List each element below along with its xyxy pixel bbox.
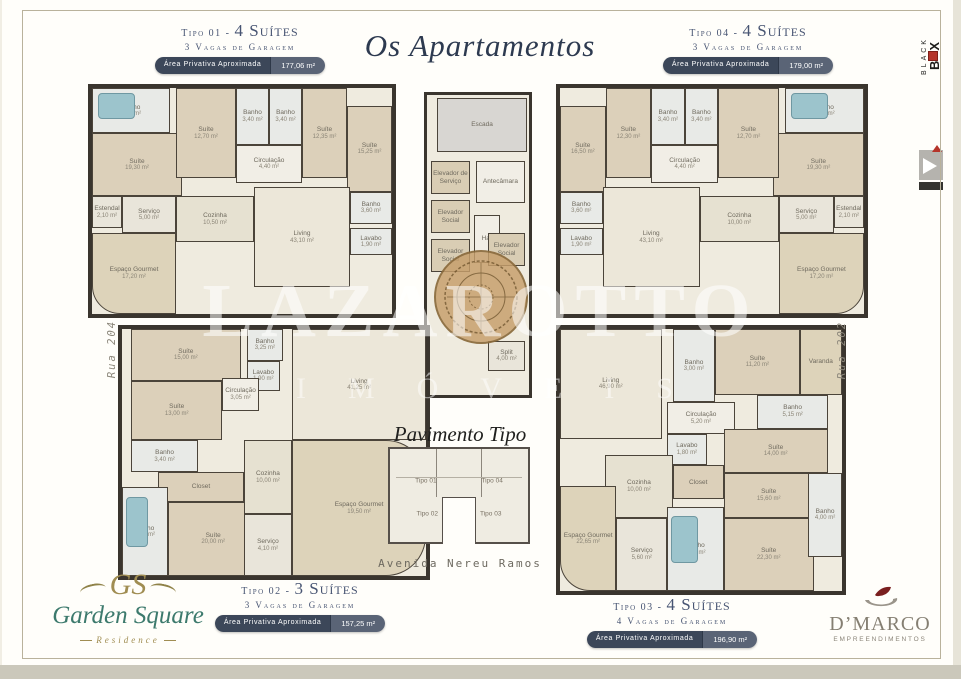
room-elevador-social: Elevador Social bbox=[488, 233, 525, 266]
mini-plan-line bbox=[436, 449, 437, 497]
red-cube-icon bbox=[928, 51, 938, 61]
room-label: Serviço bbox=[138, 208, 160, 215]
room-area: 11,20 m² bbox=[746, 362, 769, 369]
room-area: 1,90 m² bbox=[361, 242, 381, 249]
room-banho: Banho6,00 m² bbox=[92, 88, 170, 133]
room-area: 3,40 m² bbox=[154, 457, 174, 464]
room-suite: Suíte12,30 m² bbox=[606, 88, 652, 178]
room-area: 10,00 m² bbox=[256, 478, 280, 485]
room-label: Espaço Gourmet bbox=[110, 266, 159, 273]
room-area: 20,00 m² bbox=[201, 539, 225, 546]
room-area: 4,00 m² bbox=[496, 356, 516, 363]
room-espaco-gourmet: Espaço Gourmet22,65 m² bbox=[560, 486, 616, 591]
red-triangle-icon bbox=[932, 145, 942, 152]
room-label: Circulação bbox=[225, 387, 256, 394]
room-label: Suíte bbox=[575, 142, 590, 149]
room-banho: Banho6,50 m² bbox=[667, 507, 723, 591]
room-area: 3,60 m² bbox=[571, 208, 591, 215]
room-label: Cozinha bbox=[203, 212, 227, 219]
room-area: 17,20 m² bbox=[122, 274, 146, 281]
room-area: 19,30 m² bbox=[807, 165, 831, 172]
room-banho: Banho4,00 m² bbox=[808, 473, 842, 557]
room-label: Suíte bbox=[761, 547, 776, 554]
room-label: Varanda bbox=[809, 358, 833, 365]
room-label: Suíte bbox=[198, 126, 213, 133]
room-label: Suíte bbox=[750, 355, 765, 362]
room-banho: Banho3,40 m² bbox=[685, 88, 718, 145]
room-label: Banho bbox=[783, 404, 802, 411]
room-area: 15,60 m² bbox=[757, 496, 781, 503]
area-badge: Área Privativa Aproximada 179,00 m² bbox=[663, 57, 833, 74]
room-label: Banho bbox=[685, 359, 704, 366]
room-label: Antecâmara bbox=[483, 178, 518, 185]
unit-label-tipo04: Tipo 04 - 4 Suítes 3 Vagas de Garagem Ár… bbox=[633, 22, 863, 74]
room-area: 10,50 m² bbox=[203, 220, 227, 227]
room-label: Banho bbox=[243, 109, 262, 116]
room-lavabo: Lavabo1,90 m² bbox=[560, 228, 603, 255]
room-label: Banho bbox=[659, 109, 678, 116]
room-elevador-de-servico: Elevador de Serviço bbox=[431, 161, 470, 194]
room-suite: Suíte12,70 m² bbox=[718, 88, 779, 178]
room-label: Cozinha bbox=[627, 479, 651, 486]
blackbox-b: B bbox=[927, 61, 942, 70]
dmarco-swoosh-icon bbox=[857, 583, 903, 609]
room-label: Elevador Social bbox=[433, 209, 468, 224]
room-area: 3,40 m² bbox=[658, 117, 678, 124]
room-area: 1,90 m² bbox=[571, 242, 591, 249]
mini-plan-line bbox=[481, 449, 482, 497]
room-label: Suíte bbox=[811, 158, 826, 165]
room-suite: Suíte12,70 m² bbox=[176, 88, 236, 178]
room-area: 19,30 m² bbox=[125, 165, 149, 172]
room-suite: Suíte16,50 m² bbox=[560, 106, 606, 192]
room-label: Split bbox=[500, 349, 513, 356]
garden-square-subtitle: Residence bbox=[80, 635, 175, 645]
room-label: Lavabo bbox=[676, 442, 697, 449]
room-label: Cozinha bbox=[727, 212, 751, 219]
room-label: Circulação bbox=[686, 411, 717, 418]
room-area: 5,60 m² bbox=[632, 555, 652, 562]
room-label: Suíte bbox=[206, 532, 221, 539]
area-badge: Área Privativa Aproximada 157,25 m² bbox=[215, 615, 385, 632]
unit-tipo-prefix: Tipo 02 - bbox=[241, 586, 290, 597]
unit-vagas: 3 Vagas de Garagem bbox=[633, 42, 863, 52]
room-escada: Escada bbox=[437, 98, 527, 152]
room-label: Serviço bbox=[795, 208, 817, 215]
area-badge-label: Área Privativa Aproximada bbox=[587, 631, 702, 648]
mini-label-tipo04: Tipo 04 bbox=[481, 477, 502, 484]
room-area: 14,00 m² bbox=[764, 451, 788, 458]
room-label: Banho bbox=[362, 201, 381, 208]
room-estendal: Estendal2,10 m² bbox=[834, 196, 864, 228]
room-closet: Closet bbox=[158, 472, 243, 502]
bottom-margin-band bbox=[0, 665, 961, 679]
area-badge-value: 179,00 m² bbox=[778, 57, 833, 74]
room-estendal: Estendal2,10 m² bbox=[92, 196, 122, 228]
room-suite: Suíte14,00 m² bbox=[724, 429, 828, 474]
room-suite: Suíte11,20 m² bbox=[715, 329, 800, 395]
area-badge-label: Área Privativa Aproximada bbox=[215, 615, 330, 632]
room-lavabo: Lavabo1,80 m² bbox=[667, 434, 706, 465]
area-badge: Área Privativa Aproximada 177,06 m² bbox=[155, 57, 325, 74]
room-lavabo: Lavabo1,90 m² bbox=[350, 228, 392, 255]
unit-title: Tipo 01 - 4 Suítes bbox=[125, 22, 355, 40]
room-label: Suíte bbox=[362, 142, 377, 149]
room-banho: Banho3,60 m² bbox=[350, 192, 392, 224]
room-area: 4,40 m² bbox=[674, 164, 694, 171]
room-cozinha: Cozinha10,50 m² bbox=[176, 196, 254, 241]
room-area: 12,70 m² bbox=[194, 134, 218, 141]
dmarco-name: D’MARCO bbox=[816, 614, 944, 634]
room-label: Circulação bbox=[254, 157, 285, 164]
room-servico: Serviço5,00 m² bbox=[779, 196, 834, 232]
pavimento-tipo-mini-plan: Tipo 01 Tipo 04 Tipo 02 Tipo 03 bbox=[388, 447, 530, 544]
room-banho: Banho3,40 m² bbox=[269, 88, 302, 145]
room-elevador-social: Elevador Social bbox=[431, 239, 470, 272]
blackbox-line1: BLACK bbox=[921, 24, 928, 88]
room-label: Suíte bbox=[621, 126, 636, 133]
gray-square-icon bbox=[919, 150, 943, 180]
unit-label-tipo03: Tipo 03 - 4 Suítes 4 Vagas de Garagem Ár… bbox=[557, 596, 787, 648]
room-suite: Suíte12,35 m² bbox=[302, 88, 347, 178]
area-badge-value: 196,90 m² bbox=[702, 631, 757, 648]
room-label: Suíte bbox=[129, 158, 144, 165]
room-area: 5,20 m² bbox=[691, 419, 711, 426]
room-closet: Closet bbox=[673, 465, 724, 499]
room-label: Espaço Gourmet bbox=[564, 532, 613, 539]
street-label-rua-204: Rua 204 bbox=[106, 314, 120, 384]
room-area: 10,00 m² bbox=[728, 220, 752, 227]
room-label: Suíte bbox=[317, 126, 332, 133]
room-espaco-gourmet: Espaço Gourmet17,20 m² bbox=[92, 233, 176, 314]
room-circulacao: Circulação3,05 m² bbox=[222, 378, 258, 410]
room-area: 3,60 m² bbox=[361, 208, 381, 215]
room-elevador-social: Elevador Social bbox=[431, 200, 470, 233]
room-antecamara: Antecâmara bbox=[476, 161, 525, 203]
room-label: Escada bbox=[471, 121, 493, 128]
room-banho: Banho5,15 m² bbox=[122, 487, 168, 576]
room-area: 4,00 m² bbox=[815, 515, 835, 522]
blackbox-secondary-mark bbox=[919, 150, 943, 190]
room-cozinha: Cozinha10,00 m² bbox=[700, 196, 779, 241]
room-area: 16,50 m² bbox=[571, 149, 595, 156]
room-split: Split4,00 m² bbox=[488, 341, 525, 371]
room-area: 19,50 m² bbox=[347, 509, 371, 516]
bathtub-icon bbox=[126, 497, 148, 547]
room-area: 41,25 m² bbox=[347, 385, 371, 392]
room-label: Suíte bbox=[169, 403, 184, 410]
right-margin-band bbox=[953, 0, 961, 679]
room-suite: Suíte19,30 m² bbox=[773, 133, 864, 196]
room-suite: Suíte19,30 m² bbox=[92, 133, 182, 196]
room-banho: Banho3,40 m² bbox=[236, 88, 269, 145]
area-badge: Área Privativa Aproximada 196,90 m² bbox=[587, 631, 757, 648]
area-badge-value: 157,25 m² bbox=[330, 615, 385, 632]
dmarco-subtitle: EMPREENDIMENTOS bbox=[816, 636, 944, 643]
room-circulacao: Circulação4,40 m² bbox=[651, 145, 718, 183]
floorplan-tipo02: Suíte15,00 m²Banho3,25 m²Lavabo1,90 m²Li… bbox=[118, 325, 430, 580]
room-area: 22,65 m² bbox=[576, 539, 600, 546]
floorplan-tipo01: Banho6,00 m²Suíte19,30 m²Suíte12,70 m²Ba… bbox=[88, 84, 396, 318]
unit-label-tipo01: Tipo 01 - 4 Suítes 3 Vagas de Garagem Ár… bbox=[125, 22, 355, 74]
floorplan-tipo04: Banho6,00 m²Suíte19,30 m²Suíte12,70 m²Ba… bbox=[556, 84, 868, 318]
room-area: 12,30 m² bbox=[617, 134, 641, 141]
room-area: 43,10 m² bbox=[290, 238, 314, 245]
room-area: 12,35 m² bbox=[313, 134, 337, 141]
room-area: 5,00 m² bbox=[139, 215, 159, 222]
mini-plan-notch bbox=[442, 497, 475, 544]
room-label: Suíte bbox=[761, 488, 776, 495]
room-area: 4,10 m² bbox=[258, 546, 278, 553]
room-label: Suíte bbox=[741, 126, 756, 133]
blackbox-line2: BX bbox=[928, 24, 941, 88]
area-badge-value: 177,06 m² bbox=[270, 57, 325, 74]
unit-vagas: 4 Vagas de Garagem bbox=[557, 616, 787, 626]
room-area: 15,25 m² bbox=[358, 149, 382, 156]
room-suite: Suíte22,30 m² bbox=[724, 518, 814, 591]
room-label: Banho bbox=[255, 338, 274, 345]
room-area: 3,05 m² bbox=[230, 395, 250, 402]
leaf-flourish-icon bbox=[149, 581, 177, 598]
room-label: Banho bbox=[155, 449, 174, 456]
room-area: 4,40 m² bbox=[259, 164, 279, 171]
room-circulacao: Circulação4,40 m² bbox=[236, 145, 302, 183]
room-label: Banho bbox=[816, 508, 835, 515]
room-area: 22,30 m² bbox=[757, 555, 781, 562]
unit-suites: 4 Suítes bbox=[235, 21, 299, 40]
room-label: Elevador de Serviço bbox=[433, 170, 468, 185]
unit-tipo-prefix: Tipo 03 - bbox=[613, 602, 662, 613]
room-label: Living bbox=[294, 230, 311, 237]
room-suite: Suíte15,60 m² bbox=[724, 473, 814, 518]
room-label: Elevador Social bbox=[433, 248, 468, 263]
room-label: Living bbox=[351, 378, 368, 385]
area-badge-label: Área Privativa Aproximada bbox=[155, 57, 270, 74]
mini-label-tipo02: Tipo 02 bbox=[417, 511, 438, 518]
floorplan-core: EscadaElevador de ServiçoAntecâmaraEleva… bbox=[424, 92, 532, 398]
dmarco-logo: D’MARCO EMPREENDIMENTOS bbox=[816, 583, 944, 643]
blackbox-logo: BLACK BX bbox=[921, 24, 945, 88]
room-area: 43,10 m² bbox=[639, 238, 663, 245]
room-area: 46,90 m² bbox=[599, 384, 623, 391]
room-label: Banho bbox=[572, 201, 591, 208]
blackbox-logo-text: BLACK BX bbox=[921, 24, 945, 88]
blackbox-x: X bbox=[927, 42, 942, 51]
room-area: 3,40 m² bbox=[242, 117, 262, 124]
room-banho: Banho3,40 m² bbox=[651, 88, 684, 145]
room-suite: Suíte15,00 m² bbox=[131, 329, 240, 381]
pavimento-tipo-title: Pavimento Tipo bbox=[330, 422, 590, 447]
room-suite: Suíte15,25 m² bbox=[347, 106, 392, 192]
room-label: Closet bbox=[689, 479, 707, 486]
unit-vagas: 3 Vagas de Garagem bbox=[125, 42, 355, 52]
bathtub-icon bbox=[98, 93, 135, 119]
room-suite: Suíte13,00 m² bbox=[131, 381, 222, 440]
unit-suites: 3 Suítes bbox=[295, 579, 359, 598]
room-area: 12,70 m² bbox=[737, 134, 761, 141]
room-area: 5,00 m² bbox=[796, 215, 816, 222]
room-label: Closet bbox=[192, 483, 210, 490]
room-area: 3,40 m² bbox=[275, 117, 295, 124]
area-badge-label: Área Privativa Aproximada bbox=[663, 57, 778, 74]
garden-square-name: Garden Square bbox=[33, 602, 223, 630]
room-label: Serviço bbox=[257, 538, 279, 545]
room-banho: Banho3,00 m² bbox=[673, 329, 715, 402]
room-label: Circulação bbox=[669, 157, 700, 164]
room-label: Cozinha bbox=[256, 470, 280, 477]
garden-square-initials: GS bbox=[110, 568, 147, 601]
room-label: Living bbox=[602, 377, 619, 384]
room-label: Elevador Social bbox=[490, 242, 523, 257]
mini-label-tipo03: Tipo 03 bbox=[480, 511, 501, 518]
street-label-rua-202: Rua 202 bbox=[836, 315, 850, 385]
room-label: Lavabo bbox=[360, 235, 381, 242]
room-banho: Banho3,60 m² bbox=[560, 192, 603, 224]
room-label: Serviço bbox=[631, 547, 653, 554]
room-area: 13,00 m² bbox=[165, 411, 189, 418]
room-living: Living43,10 m² bbox=[254, 187, 350, 286]
room-label: Estendal bbox=[836, 205, 861, 212]
room-label: Lavabo bbox=[253, 369, 274, 376]
room-area: 3,40 m² bbox=[691, 117, 711, 124]
room-label: Banho bbox=[276, 109, 295, 116]
logo-caption-bar bbox=[919, 182, 943, 190]
room-label: Estendal bbox=[94, 205, 119, 212]
floorplan-tipo03: Living46,90 m²Banho3,00 m²Suíte11,20 m²V… bbox=[556, 325, 846, 595]
garden-square-monogram: GS bbox=[33, 570, 223, 600]
leaf-flourish-icon bbox=[79, 581, 107, 598]
room-area: 3,25 m² bbox=[255, 345, 275, 352]
room-area: 10,00 m² bbox=[627, 487, 651, 494]
room-label: Suíte bbox=[768, 444, 783, 451]
room-label: Lavabo bbox=[571, 235, 592, 242]
unit-suites: 4 Suítes bbox=[667, 595, 731, 614]
unit-title: Tipo 04 - 4 Suítes bbox=[633, 22, 863, 40]
room-area: 2,10 m² bbox=[97, 213, 117, 220]
mini-label-tipo01: Tipo 01 bbox=[415, 477, 436, 484]
room-label: Espaço Gourmet bbox=[797, 266, 846, 273]
unit-suites: 4 Suítes bbox=[743, 21, 807, 40]
unit-tipo-prefix: Tipo 04 - bbox=[689, 28, 738, 39]
room-area: 2,10 m² bbox=[839, 213, 859, 220]
room-area: 1,80 m² bbox=[677, 450, 697, 457]
room-area: 15,00 m² bbox=[174, 355, 198, 362]
room-area: 5,15 m² bbox=[782, 412, 802, 419]
room-servico: Serviço4,10 m² bbox=[244, 514, 293, 576]
garden-square-logo: GS Garden Square Residence bbox=[33, 570, 223, 648]
room-servico: Serviço5,60 m² bbox=[616, 518, 667, 591]
room-banho: Banho5,15 m² bbox=[757, 395, 828, 429]
room-label: Living bbox=[643, 230, 660, 237]
room-banho: Banho3,25 m² bbox=[247, 329, 283, 361]
room-espaco-gourmet: Espaço Gourmet17,20 m² bbox=[779, 233, 864, 314]
room-banho: Banho6,00 m² bbox=[785, 88, 864, 133]
page-title: Os Apartamentos bbox=[330, 28, 630, 64]
room-living: Living43,10 m² bbox=[603, 187, 700, 286]
room-banho: Banho3,40 m² bbox=[131, 440, 198, 472]
room-servico: Serviço5,00 m² bbox=[122, 196, 176, 232]
bathtub-icon bbox=[671, 516, 698, 563]
room-label: Suíte bbox=[178, 348, 193, 355]
unit-title: Tipo 03 - 4 Suítes bbox=[557, 596, 787, 614]
room-cozinha: Cozinha10,00 m² bbox=[244, 440, 293, 514]
unit-tipo-prefix: Tipo 01 - bbox=[181, 28, 230, 39]
room-label: Espaço Gourmet bbox=[335, 501, 384, 508]
street-label-avenida: Avenida Nereu Ramos bbox=[320, 557, 600, 570]
room-label: Banho bbox=[692, 109, 711, 116]
bathtub-icon bbox=[791, 93, 828, 119]
room-area: 3,00 m² bbox=[684, 366, 704, 373]
room-area: 17,20 m² bbox=[810, 274, 834, 281]
